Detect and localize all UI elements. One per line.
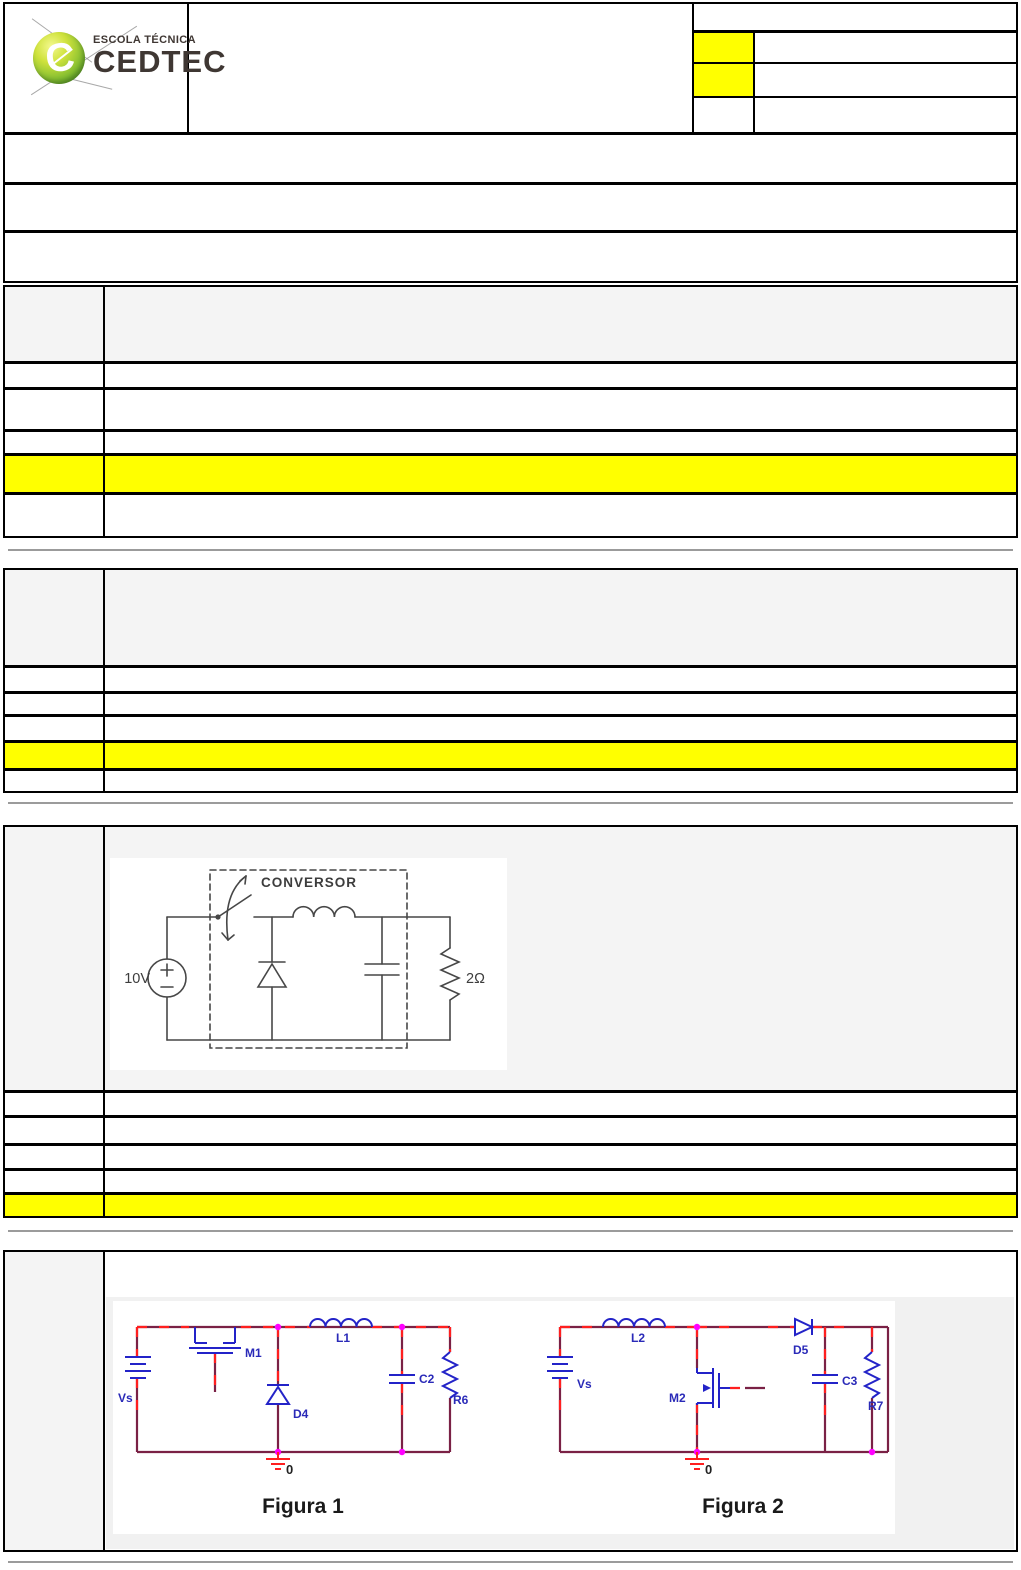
q2-option-b-letter <box>5 694 105 714</box>
q3-option-c-text <box>105 1146 1016 1168</box>
q1-option-c-text <box>105 432 1016 453</box>
section-divider <box>8 1561 1013 1563</box>
header-right-row-4 <box>694 98 1016 132</box>
converter-dashed-box <box>210 870 407 1048</box>
q1-option-d-text <box>105 456 1016 492</box>
mosfet-icon <box>697 1368 730 1408</box>
resistor-icon <box>441 948 459 1000</box>
schematics-figure: Vs M1 L1 D4 C2 R6 0 Figura 1 Vs L2 M2 D5… <box>106 1297 1014 1549</box>
header-right-table <box>694 4 1016 132</box>
q3-option-c-letter <box>5 1146 105 1168</box>
q2-option-d-text <box>105 743 1016 768</box>
q1-option-b-text <box>105 390 1016 429</box>
header-band-row <box>5 230 1016 281</box>
q2-number-cell <box>5 570 105 665</box>
battery-icon <box>547 1357 573 1378</box>
logo-emblem-icon: C <box>33 32 85 84</box>
header-right-row-3 <box>694 64 1016 98</box>
header-key-cell <box>694 64 755 96</box>
fig1-capacitor-label: C2 <box>419 1372 435 1386</box>
q3-option-d-text <box>105 1171 1016 1192</box>
q2-option-d-letter <box>5 743 105 768</box>
fig2-diode-label: D5 <box>793 1343 809 1357</box>
q1-option-c-letter <box>5 432 105 453</box>
q2-option-e-text <box>105 771 1016 791</box>
fig1-caption: Figura 1 <box>262 1495 344 1518</box>
header-key-cell <box>694 33 755 62</box>
section-divider <box>8 549 1013 551</box>
load-resistance-label: 2Ω <box>466 971 485 987</box>
q2-stem-cell <box>105 570 1016 665</box>
battery-icon <box>125 1357 151 1378</box>
fig2-inductor-label: L2 <box>631 1331 645 1345</box>
q1-option-b-letter <box>5 390 105 429</box>
logo-cell: C ESCOLA TÉCNICA CEDTEC <box>5 4 189 132</box>
question-2-table <box>3 568 1018 793</box>
q1-option-a-text <box>105 364 1016 387</box>
question-1-table <box>3 285 1018 538</box>
fig1-diode-label: D4 <box>293 1407 309 1421</box>
fig1-resistor-label: R6 <box>453 1393 469 1407</box>
fig2-source-label: Vs <box>577 1377 592 1391</box>
header-value-cell <box>755 98 1016 132</box>
fig2-capacitor-label: C3 <box>842 1374 858 1388</box>
diode-icon <box>258 964 286 987</box>
q2-option-a-letter <box>5 668 105 691</box>
diode-icon <box>267 1387 289 1404</box>
schematics-canvas: Vs M1 L1 D4 C2 R6 0 Figura 1 Vs L2 M2 D5… <box>113 1301 895 1534</box>
inductor-icon <box>603 1319 665 1327</box>
junction-dot-icon <box>275 1324 875 1455</box>
header-right-row-1 <box>694 4 1016 33</box>
q3-option-a-letter <box>5 1093 105 1115</box>
header-band-row <box>5 132 1016 182</box>
fig1-source-label: Vs <box>118 1391 133 1405</box>
q3-option-e-text <box>105 1195 1016 1216</box>
q3-option-e-letter <box>5 1195 105 1216</box>
q3-option-d-letter <box>5 1171 105 1192</box>
q4-number-cell <box>5 1252 105 1550</box>
q1-number-cell <box>5 287 105 361</box>
header-table: C ESCOLA TÉCNICA CEDTEC <box>3 2 1018 283</box>
q1-option-e-text <box>105 495 1016 536</box>
q2-option-a-text <box>105 668 1016 691</box>
q3-option-a-text <box>105 1093 1016 1115</box>
header-band-row <box>5 182 1016 230</box>
header-key-cell <box>694 98 755 132</box>
q1-option-a-letter <box>5 364 105 387</box>
fig1-inductor-label: L1 <box>336 1331 350 1345</box>
fig2-caption: Figura 2 <box>702 1495 784 1518</box>
resistor-icon <box>443 1352 457 1398</box>
fig2-mosfet-label: M2 <box>669 1391 686 1405</box>
q1-option-d-letter <box>5 456 105 492</box>
q2-option-c-text <box>105 717 1016 740</box>
fig1-ground-label: 0 <box>286 1462 293 1477</box>
capacitor-icon <box>389 1375 415 1383</box>
school-logo: C ESCOLA TÉCNICA CEDTEC <box>31 24 189 90</box>
switch-icon <box>218 895 251 917</box>
source-voltage-label: 10V <box>124 971 150 987</box>
header-value-cell <box>755 64 1016 96</box>
fig2-ground-label: 0 <box>705 1462 712 1477</box>
section-divider <box>8 802 1013 804</box>
inductor-icon <box>310 1319 372 1327</box>
document-page: C ESCOLA TÉCNICA CEDTEC <box>0 0 1021 1570</box>
q2-option-c-letter <box>5 717 105 740</box>
diode-icon <box>795 1319 812 1335</box>
ground-icon <box>266 1452 709 1469</box>
q3-number-cell <box>5 827 105 1090</box>
converter-box-label: CONVERSOR <box>261 875 357 890</box>
q3-option-b-letter <box>5 1118 105 1143</box>
inductor-icon <box>293 907 355 917</box>
mosfet-icon <box>189 1327 241 1353</box>
header-right-row-2 <box>694 33 1016 64</box>
q2-option-e-letter <box>5 771 105 791</box>
header-title-cell <box>189 4 694 132</box>
section-divider <box>8 1230 1013 1232</box>
resistor-icon <box>865 1352 879 1398</box>
q1-stem-cell <box>105 287 1016 361</box>
capacitor-icon <box>812 1375 838 1383</box>
q2-option-b-text <box>105 694 1016 714</box>
logo-school-name: CEDTEC <box>93 47 226 77</box>
converter-circuit-figure: CONVERSOR 10V 2Ω <box>110 858 507 1070</box>
header-value-cell <box>755 33 1016 62</box>
q1-option-e-letter <box>5 495 105 536</box>
q3-option-b-text <box>105 1118 1016 1143</box>
fig1-mosfet-label: M1 <box>245 1346 262 1360</box>
fig2-resistor-label: R7 <box>868 1399 884 1413</box>
